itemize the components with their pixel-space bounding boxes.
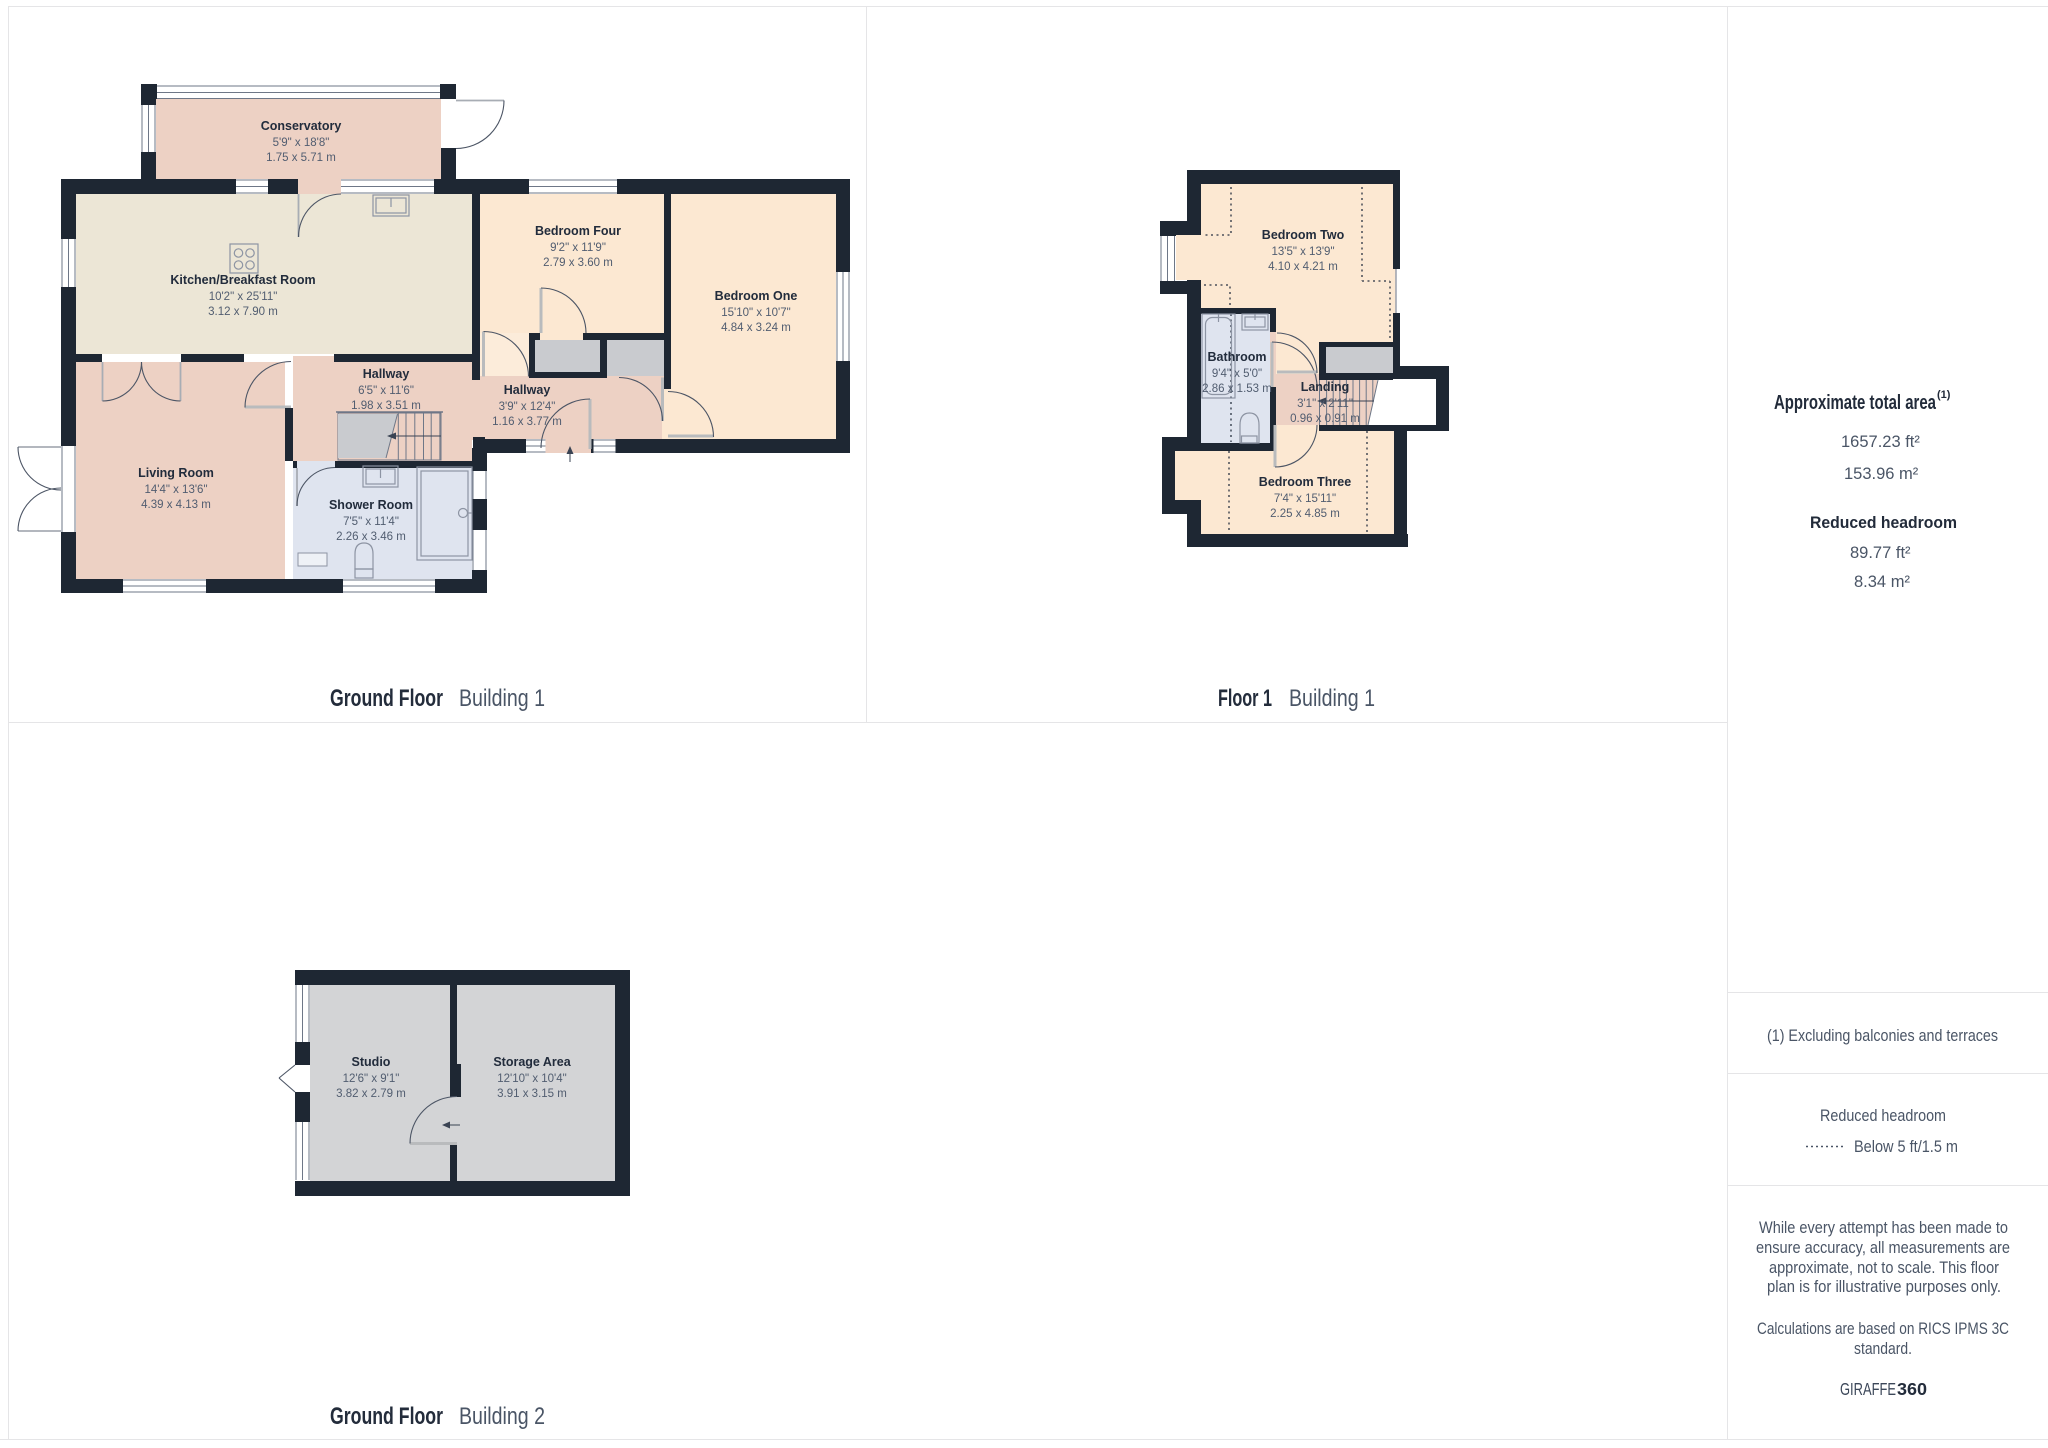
svg-text:Kitchen/Breakfast Room: Kitchen/Breakfast Room bbox=[170, 273, 315, 287]
svg-text:Bedroom One: Bedroom One bbox=[715, 289, 798, 303]
svg-text:(1) Excluding balconies and te: (1) Excluding balconies and terraces bbox=[1767, 1027, 1998, 1045]
svg-text:Hallway: Hallway bbox=[363, 367, 410, 381]
svg-text:Living Room: Living Room bbox=[138, 466, 214, 480]
svg-text:12'6" x 9'1": 12'6" x 9'1" bbox=[343, 1073, 400, 1085]
svg-text:3.82 x 2.79 m: 3.82 x 2.79 m bbox=[336, 1088, 406, 1100]
svg-text:Conservatory: Conservatory bbox=[261, 119, 342, 133]
svg-text:14'4" x 13'6": 14'4" x 13'6" bbox=[144, 484, 207, 496]
svg-text:Reduced headroom: Reduced headroom bbox=[1820, 1107, 1946, 1125]
svg-text:(1): (1) bbox=[1937, 389, 1951, 401]
svg-text:Hallway: Hallway bbox=[504, 383, 551, 397]
svg-text:plan is for illustrative purpo: plan is for illustrative purposes only. bbox=[1767, 1278, 2001, 1296]
svg-text:4.84 x 3.24 m: 4.84 x 3.24 m bbox=[721, 322, 791, 334]
svg-text:15'10" x 10'7": 15'10" x 10'7" bbox=[721, 307, 790, 319]
svg-text:Landing: Landing bbox=[1301, 380, 1350, 394]
svg-text:ensure accuracy, all measureme: ensure accuracy, all measurements are bbox=[1756, 1239, 2010, 1257]
svg-text:Storage Area: Storage Area bbox=[493, 1055, 571, 1069]
svg-text:7'5" x 11'4": 7'5" x 11'4" bbox=[343, 516, 399, 528]
svg-text:3'1" x 2'11": 3'1" x 2'11" bbox=[1297, 398, 1353, 410]
svg-text:4.39 x 4.13 m: 4.39 x 4.13 m bbox=[141, 499, 211, 511]
svg-text:Approximate total area: Approximate total area bbox=[1774, 391, 1936, 414]
svg-text:Ground Floor: Ground Floor bbox=[330, 685, 443, 712]
svg-text:1.75 x 5.71 m: 1.75 x 5.71 m bbox=[266, 152, 336, 164]
svg-text:89.77 ft²: 89.77 ft² bbox=[1850, 544, 1911, 562]
svg-text:8.34 m²: 8.34 m² bbox=[1854, 573, 1910, 591]
svg-text:3.12 x 7.90 m: 3.12 x 7.90 m bbox=[208, 306, 278, 318]
svg-text:9'4" x 5'0": 9'4" x 5'0" bbox=[1212, 368, 1262, 380]
svg-text:Calculations are based on RICS: Calculations are based on RICS IPMS 3C bbox=[1757, 1320, 2009, 1338]
svg-text:3.91 x 3.15 m: 3.91 x 3.15 m bbox=[497, 1088, 567, 1100]
svg-text:While every attempt has been m: While every attempt has been made to bbox=[1759, 1219, 2008, 1237]
svg-text:Bedroom Four: Bedroom Four bbox=[535, 224, 621, 238]
svg-text:Bedroom Two: Bedroom Two bbox=[1262, 228, 1345, 242]
svg-text:0.96 x 0.91 m: 0.96 x 0.91 m bbox=[1290, 413, 1360, 425]
svg-text:2.25 x 4.85 m: 2.25 x 4.85 m bbox=[1270, 508, 1340, 520]
svg-text:2.86 x 1.53 m: 2.86 x 1.53 m bbox=[1202, 383, 1272, 395]
svg-text:Building 1: Building 1 bbox=[459, 685, 545, 712]
svg-text:10'2" x 25'11": 10'2" x 25'11" bbox=[209, 291, 278, 303]
svg-text:2.79 x 3.60 m: 2.79 x 3.60 m bbox=[543, 257, 613, 269]
svg-text:7'4" x 15'11": 7'4" x 15'11" bbox=[1274, 493, 1336, 505]
svg-text:5'9" x 18'8": 5'9" x 18'8" bbox=[273, 137, 330, 149]
svg-text:6'5" x 11'6": 6'5" x 11'6" bbox=[358, 385, 414, 397]
svg-text:Shower Room: Shower Room bbox=[329, 498, 413, 512]
svg-text:1.16 x 3.77 m: 1.16 x 3.77 m bbox=[492, 416, 562, 428]
svg-text:360: 360 bbox=[1897, 1379, 1927, 1399]
svg-text:Building 1: Building 1 bbox=[1289, 685, 1375, 712]
svg-text:2.26 x 3.46 m: 2.26 x 3.46 m bbox=[336, 531, 406, 543]
svg-text:1.98 x 3.51 m: 1.98 x 3.51 m bbox=[351, 400, 421, 412]
svg-text:Floor 1: Floor 1 bbox=[1218, 685, 1272, 712]
svg-text:4.10 x 4.21 m: 4.10 x 4.21 m bbox=[1268, 261, 1338, 273]
svg-text:Building 2: Building 2 bbox=[459, 1403, 545, 1430]
svg-text:153.96 m²: 153.96 m² bbox=[1844, 465, 1919, 483]
svg-text:GIRAFFE: GIRAFFE bbox=[1840, 1379, 1896, 1399]
svg-text:Reduced headroom: Reduced headroom bbox=[1810, 513, 1957, 532]
svg-text:standard.: standard. bbox=[1854, 1340, 1912, 1358]
svg-text:Below 5 ft/1.5 m: Below 5 ft/1.5 m bbox=[1854, 1138, 1958, 1156]
svg-text:Ground Floor: Ground Floor bbox=[330, 1403, 443, 1430]
svg-text:1657.23 ft²: 1657.23 ft² bbox=[1841, 433, 1920, 451]
svg-text:12'10" x 10'4": 12'10" x 10'4" bbox=[497, 1073, 566, 1085]
svg-text:Bedroom Three: Bedroom Three bbox=[1259, 475, 1351, 489]
svg-text:Studio: Studio bbox=[352, 1055, 391, 1069]
svg-text:9'2" x 11'9": 9'2" x 11'9" bbox=[550, 242, 606, 254]
svg-text:Bathroom: Bathroom bbox=[1207, 350, 1266, 364]
svg-text:approximate, not to scale. Thi: approximate, not to scale. This floor bbox=[1769, 1259, 1999, 1277]
svg-text:13'5" x 13'9": 13'5" x 13'9" bbox=[1271, 246, 1334, 258]
svg-text:3'9" x 12'4": 3'9" x 12'4" bbox=[499, 401, 556, 413]
